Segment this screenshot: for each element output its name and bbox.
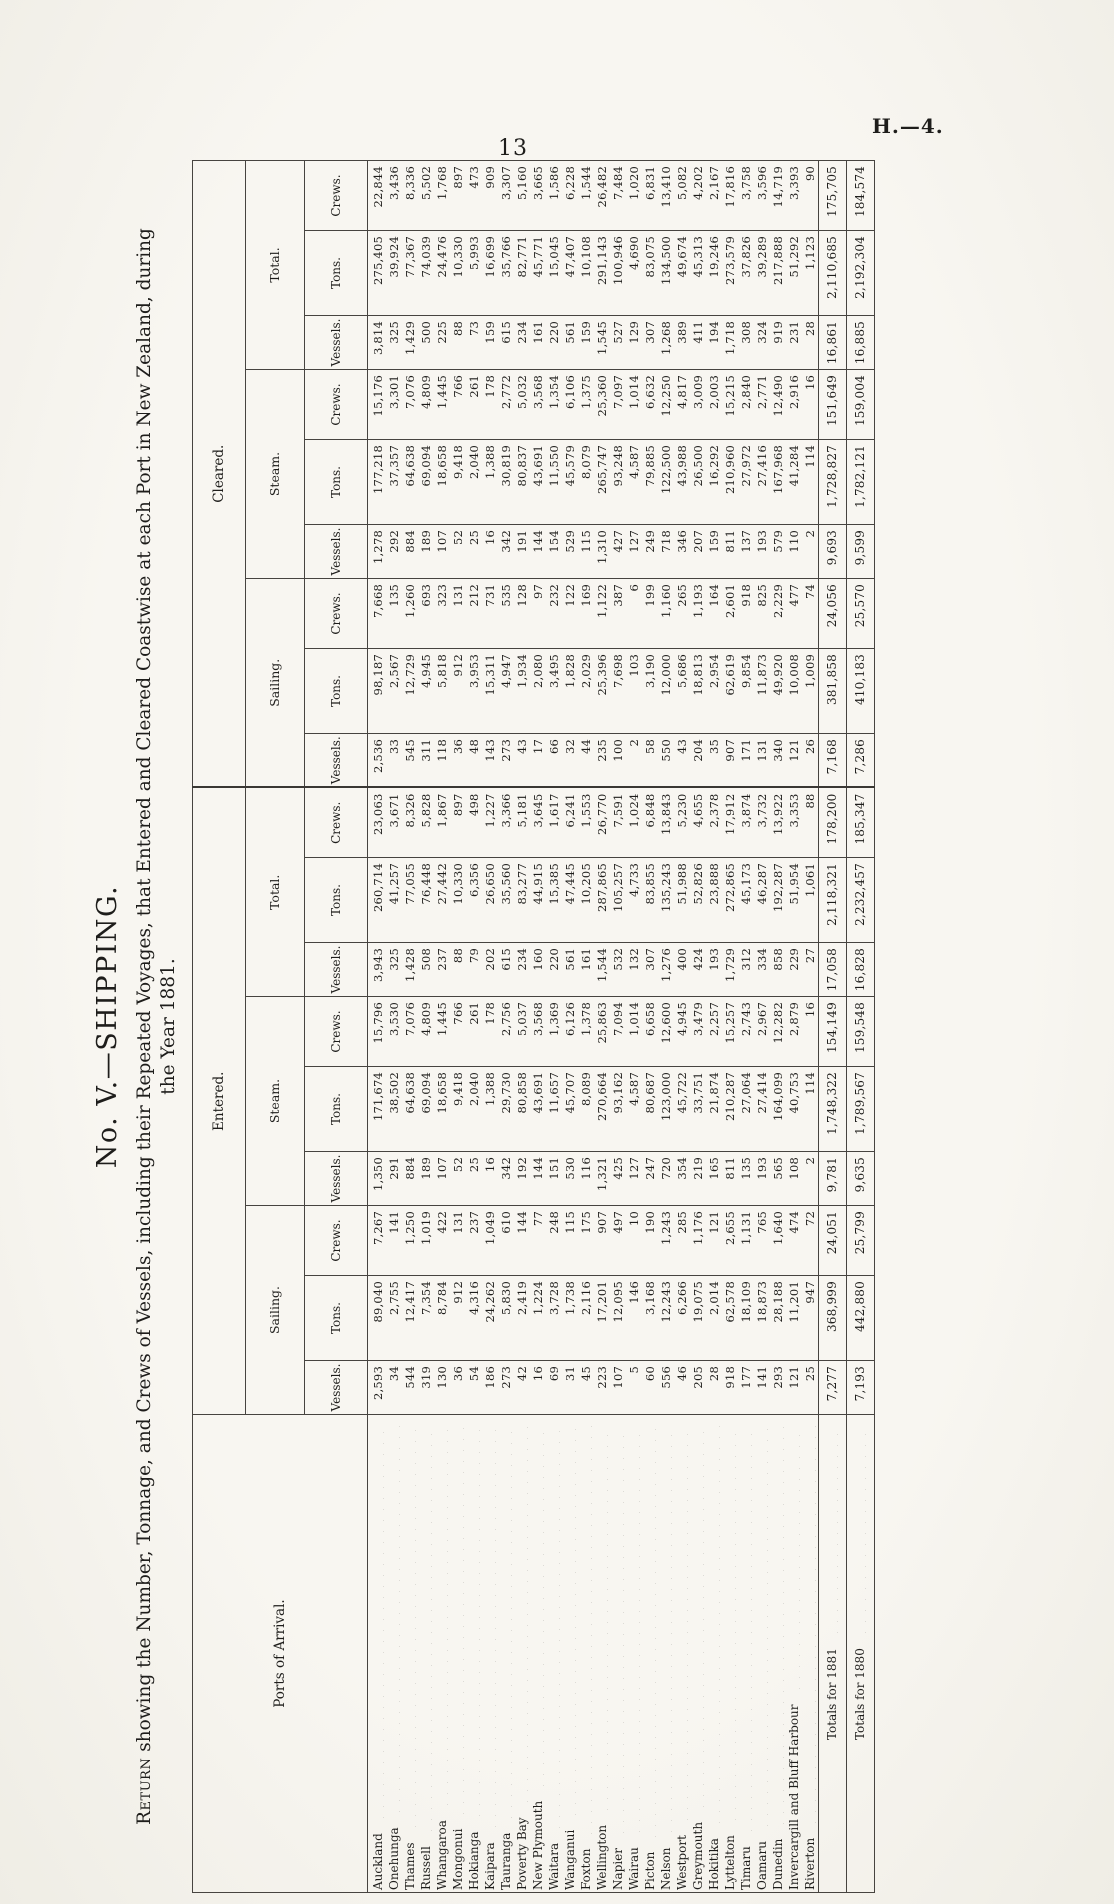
value-cell: 76,448 [418,858,434,943]
value-cell: 107 [610,1361,626,1415]
value-cell: 2,916 [786,370,802,440]
entered-sailing-header: Sailing. [245,1206,304,1415]
value-cell: 16,828 [846,943,874,997]
value-cell: 2,771 [754,370,770,440]
value-cell: 39,289 [754,231,770,316]
table-row: Greymouth20519,0751,17621933,7513,479424… [690,161,706,1893]
crews-column-header: Crews. [304,370,367,440]
value-cell: 171 [738,734,754,788]
leader-dots [708,1426,720,1828]
value-cell: 159 [578,316,594,370]
value-cell: 307 [642,943,658,997]
value-cell: 175 [578,1206,594,1276]
value-cell: 324 [754,316,770,370]
value-cell: 13,843 [658,788,674,858]
value-cell: 422 [434,1206,450,1276]
value-cell: 27,064 [738,1067,754,1152]
value-cell: 368,999 [818,1276,846,1361]
value-cell: 535 [498,579,514,649]
value-cell: 7,097 [610,370,626,440]
value-cell: 115 [562,1206,578,1276]
value-cell: 88 [450,316,466,370]
value-cell: 3,814 [367,316,386,370]
value-cell: 1,122 [594,579,610,649]
value-cell: 77,367 [402,231,418,316]
leader-dots [740,1426,752,1836]
value-cell: 579 [770,525,786,579]
value-cell: 293 [770,1361,786,1415]
value-cell: 17 [530,734,546,788]
value-cell: 2,840 [738,370,754,440]
value-cell: 25 [466,1152,482,1206]
value-cell: 135,243 [658,858,674,943]
value-cell: 1,388 [482,1067,498,1152]
cleared-steam-header: Steam. [245,370,304,579]
value-cell: 64,638 [402,440,418,525]
port-name: Russell [418,1415,434,1893]
value-cell: 325 [386,943,402,997]
value-cell: 909 [482,161,498,231]
value-cell: 21,874 [706,1067,722,1152]
value-cell: 13,410 [658,161,674,231]
value-cell: 387 [610,579,626,649]
value-cell: 18,873 [754,1276,770,1361]
value-cell: 16 [482,1152,498,1206]
value-cell: 1,867 [434,788,450,858]
value-cell: 4,733 [626,858,642,943]
value-cell: 43,988 [674,440,690,525]
value-cell: 25,863 [594,997,610,1067]
value-cell: 232 [546,579,562,649]
value-cell: 477 [786,579,802,649]
value-cell: 28 [802,316,819,370]
value-cell: 47,407 [562,231,578,316]
value-cell: 1,350 [367,1152,386,1206]
value-cell: 1,020 [626,161,642,231]
value-cell: 210,287 [722,1067,738,1152]
value-cell: 1,131 [738,1206,754,1276]
value-cell: 7,076 [402,997,418,1067]
value-cell: 918 [738,579,754,649]
value-cell: 12,282 [770,997,786,1067]
value-cell: 1,176 [690,1206,706,1276]
value-cell: 33,751 [690,1067,706,1152]
value-cell: 425 [610,1152,626,1206]
value-cell: 83,075 [642,231,658,316]
table-row: Dunedin29328,1881,640565164,09912,282858… [770,161,786,1893]
value-cell: 167,968 [770,440,786,525]
leader-dots [484,1426,496,1832]
value-cell: 225 [434,316,450,370]
value-cell: 12,417 [402,1276,418,1361]
value-cell: 83,855 [642,858,658,943]
entered-steam-header: Steam. [245,997,304,1206]
value-cell: 527 [610,316,626,370]
table-row: Nelson55612,2431,243720123,00012,6001,27… [658,161,674,1893]
value-cell: 127 [626,525,642,579]
value-cell: 884 [402,1152,418,1206]
value-cell: 1,782,121 [846,440,874,525]
value-cell: 918 [722,1361,738,1415]
value-cell: 410,183 [846,649,874,734]
value-cell: 3,953 [466,649,482,734]
leader-dots [756,1426,768,1831]
value-cell: 154 [546,525,562,579]
value-cell: 220 [546,943,562,997]
value-cell: 2,192,304 [846,231,874,316]
value-cell: 175,705 [818,161,846,231]
value-cell: 7,076 [402,370,418,440]
value-cell: 474 [786,1206,802,1276]
value-cell: 312 [738,943,754,997]
value-cell: 43,691 [530,440,546,525]
value-cell: 122,500 [658,440,674,525]
value-cell: 1,445 [434,370,450,440]
cleared-group-header: Cleared. [192,161,245,788]
value-cell: 11,873 [754,649,770,734]
value-cell: 248 [546,1206,562,1276]
value-cell: 169 [578,579,594,649]
value-cell: 2,257 [706,997,722,1067]
value-cell: 291 [386,1152,402,1206]
value-cell: 897 [450,161,466,231]
value-cell: 16,699 [482,231,498,316]
value-cell: 2,755 [386,1276,402,1361]
value-cell: 186 [482,1361,498,1415]
value-cell: 6,658 [642,997,658,1067]
value-cell: 16,885 [846,316,874,370]
tons-column-header: Tons. [304,1276,367,1361]
leader-dots [580,1426,592,1839]
port-name: Foxton [578,1415,594,1893]
value-cell: 128 [514,579,530,649]
value-cell: 1,243 [658,1206,674,1276]
value-cell: 69,094 [418,1067,434,1152]
value-cell: 5,502 [418,161,434,231]
value-cell: 107 [434,525,450,579]
value-cell: 3,393 [786,161,802,231]
table-totals: Totals for 18817,277368,99924,0519,7811,… [818,161,874,1893]
value-cell: 11,550 [546,440,562,525]
value-cell: 38,502 [386,1067,402,1152]
value-cell: 51,954 [786,858,802,943]
value-cell: 22,844 [367,161,386,231]
value-cell: 9,693 [818,525,846,579]
value-cell: 2,118,321 [818,858,846,943]
value-cell: 307 [642,316,658,370]
value-cell: 3,366 [498,788,514,858]
value-cell: 498 [466,788,482,858]
value-cell: 72 [802,1206,819,1276]
value-cell: 8,326 [402,788,418,858]
value-cell: 130 [434,1361,450,1415]
value-cell: 17,058 [818,943,846,997]
value-cell: 319 [418,1361,434,1415]
value-cell: 3,530 [386,997,402,1067]
value-cell: 693 [418,579,434,649]
value-cell: 1,429 [402,316,418,370]
value-cell: 79,885 [642,440,658,525]
value-cell: 16,292 [706,440,722,525]
port-name: Whangaroa [434,1415,450,1893]
value-cell: 25 [802,1361,819,1415]
value-cell: 24,051 [818,1206,846,1276]
value-cell: 9,781 [818,1152,846,1206]
value-cell: 5,082 [674,161,690,231]
value-cell: 11,657 [546,1067,562,1152]
port-name: Hokitika [706,1415,722,1893]
value-cell: 2 [802,525,819,579]
port-name: Poverty Bay [514,1415,530,1893]
value-cell: 291,143 [594,231,610,316]
value-cell: 354 [674,1152,690,1206]
table-row: Poverty Bay422,41914419280,8585,03723483… [514,161,530,1893]
value-cell: 131 [450,1206,466,1276]
value-cell: 15,045 [546,231,562,316]
value-cell: 12,095 [610,1276,626,1361]
leader-dots [404,1426,416,1832]
table-row: Oamaru14118,87376519327,4142,96733446,28… [754,161,770,1893]
value-cell: 12,243 [658,1276,674,1361]
value-cell: 1,193 [690,579,706,649]
value-cell: 118 [434,734,450,788]
value-cell: 508 [418,943,434,997]
value-cell: 154,149 [818,997,846,1067]
table-row: Napier10712,09549742593,1627,094532105,2… [610,161,626,1893]
value-cell: 308 [738,316,754,370]
value-cell: 44 [578,734,594,788]
value-cell: 912 [450,649,466,734]
value-cell: 10,330 [450,231,466,316]
value-cell: 127 [626,1152,642,1206]
value-cell: 11,201 [786,1276,802,1361]
value-cell: 16 [482,525,498,579]
value-cell: 4,655 [690,788,706,858]
value-cell: 2 [626,734,642,788]
value-cell: 121 [786,1361,802,1415]
value-cell: 62,578 [722,1276,738,1361]
totals-label: Totals for 1881 [818,1415,846,1893]
value-cell: 237 [434,943,450,997]
value-cell: 7,286 [846,734,874,788]
value-cell: 28,188 [770,1276,786,1361]
value-cell: 615 [498,943,514,997]
value-cell: 610 [498,1206,514,1276]
value-cell: 66 [546,734,562,788]
port-name: Nelson [658,1415,674,1893]
value-cell: 766 [450,997,466,1067]
value-cell: 77,055 [402,858,418,943]
value-cell: 3,301 [386,370,402,440]
value-cell: 3,009 [690,370,706,440]
value-cell: 3,168 [642,1276,658,1361]
value-cell: 1,544 [578,161,594,231]
value-cell: 17,816 [722,161,738,231]
value-cell: 947 [802,1276,819,1361]
value-cell: 33 [386,734,402,788]
value-cell: 342 [498,1152,514,1206]
tons-column-header: Tons. [304,649,367,734]
value-cell: 5,828 [418,788,434,858]
value-cell: 811 [722,525,738,579]
crews-column-header: Crews. [304,161,367,231]
totals-row: Totals for 18817,277368,99924,0519,7811,… [818,161,846,1893]
value-cell: 1,617 [546,788,562,858]
value-cell: 134,500 [658,231,674,316]
value-cell: 7,168 [818,734,846,788]
value-cell: 1,445 [434,997,450,1067]
value-cell: 340 [770,734,786,788]
value-cell: 49,674 [674,231,690,316]
leader-dots [548,1426,560,1833]
value-cell: 14,719 [770,161,786,231]
value-cell: 5,181 [514,788,530,858]
value-cell: 7,354 [418,1276,434,1361]
leader-dots [628,1426,640,1837]
value-cell: 103 [626,649,642,734]
leader-dots [612,1426,624,1838]
value-cell: 93,248 [610,440,626,525]
value-cell: 23,888 [706,858,722,943]
value-cell: 381,858 [818,649,846,734]
value-cell: 27,972 [738,440,754,525]
value-cell: 207 [690,525,706,579]
leader-dots [660,1426,672,1837]
value-cell: 25,799 [846,1206,874,1276]
value-cell: 2,378 [706,788,722,858]
value-cell: 7,591 [610,788,626,858]
table-row: Picton603,16819024780,6876,65830783,8556… [642,161,658,1893]
value-cell: 3,190 [642,649,658,734]
value-cell: 1,789,567 [846,1067,874,1152]
table-row: Lyttelton91862,5782,655811210,28715,2571… [722,161,738,1893]
value-cell: 178 [482,997,498,1067]
value-cell: 1,049 [482,1206,498,1276]
value-cell: 400 [674,943,690,997]
value-cell: 2,879 [786,997,802,1067]
value-cell: 73 [466,316,482,370]
value-cell: 43,691 [530,1067,546,1152]
value-cell: 131 [450,579,466,649]
scanned-page: 13 H.—4. No. V.—SHIPPING. Return showing… [0,0,1114,1904]
value-cell: 12,490 [770,370,786,440]
value-cell: 3,568 [530,997,546,1067]
value-cell: 231 [786,316,802,370]
value-cell: 185,347 [846,788,874,858]
value-cell: 178 [482,370,498,440]
value-cell: 4,809 [418,370,434,440]
value-cell: 273 [498,734,514,788]
value-cell: 3,495 [546,649,562,734]
value-cell: 1,375 [578,370,594,440]
value-cell: 2,167 [706,161,722,231]
value-cell: 1,260 [402,579,418,649]
leader-dots [420,1426,432,1836]
value-cell: 500 [418,316,434,370]
value-cell: 2,040 [466,440,482,525]
value-cell: 25 [466,525,482,579]
value-cell: 165 [706,1152,722,1206]
value-cell: 16,861 [818,316,846,370]
value-cell: 89,040 [367,1276,386,1361]
value-cell: 3,596 [754,161,770,231]
value-cell: 16 [802,370,819,440]
value-cell: 10,108 [578,231,594,316]
value-cell: 8,089 [578,1067,594,1152]
value-cell: 1,428 [402,943,418,997]
table-row: Wellington22317,2019071,321270,66425,863… [594,161,610,1893]
value-cell: 424 [690,943,706,997]
value-cell: 2,655 [722,1206,738,1276]
value-cell: 2,567 [386,649,402,734]
value-cell: 1,378 [578,997,594,1067]
table-row: Whangaroa1308,78442210718,6581,44523727,… [434,161,450,1893]
value-cell: 144 [530,1152,546,1206]
value-cell: 718 [658,525,674,579]
value-cell: 6,126 [562,997,578,1067]
value-cell: 2,080 [530,649,546,734]
crews-column-header: Crews. [304,1206,367,1276]
value-cell: 217,888 [770,231,786,316]
value-cell: 190 [642,1206,658,1276]
value-cell: 1,019 [418,1206,434,1276]
value-cell: 1,369 [546,997,562,1067]
table-row: Russell3197,3541,01918969,0944,80950876,… [418,161,434,1893]
value-cell: 1,586 [546,161,562,231]
value-cell: 27,414 [754,1067,770,1152]
port-name: Lyttelton [722,1415,738,1893]
value-cell: 12,000 [658,649,674,734]
value-cell: 36 [450,734,466,788]
value-cell: 1,014 [626,997,642,1067]
value-cell: 28 [706,1361,722,1415]
value-cell: 37,826 [738,231,754,316]
value-cell: 25,396 [594,649,610,734]
port-name: Oamaru [754,1415,770,1893]
leader-dots [452,1426,464,1819]
value-cell: 6,228 [562,161,578,231]
subtitle-lead: Return [134,1758,155,1825]
table-row: Tauranga2735,83061034229,7302,75661535,5… [498,161,514,1893]
leader-dots [500,1426,512,1823]
port-name: Auckland [367,1415,386,1893]
value-cell: 4,945 [418,649,434,734]
value-cell: 135 [738,1152,754,1206]
value-cell: 3,568 [530,370,546,440]
value-cell: 3,479 [690,997,706,1067]
value-cell: 35 [706,734,722,788]
value-cell: 37,357 [386,440,402,525]
port-name: Mongonui [450,1415,466,1893]
value-cell: 177,218 [367,440,386,525]
port-name: Greymouth [690,1415,706,1893]
value-cell: 229 [786,943,802,997]
value-cell: 27,442 [434,858,450,943]
leader-dots [516,1426,528,1807]
value-cell: 6,831 [642,161,658,231]
value-cell: 15,257 [722,997,738,1067]
table-row: Thames54412,4171,25088464,6387,0761,4287… [402,161,418,1893]
value-cell: 25,360 [594,370,610,440]
value-cell: 237 [466,1206,482,1276]
value-cell: 19,246 [706,231,722,316]
value-cell: 135 [386,579,402,649]
value-cell: 192,287 [770,858,786,943]
value-cell: 1,388 [482,440,498,525]
value-cell: 907 [594,1206,610,1276]
value-cell: 45 [578,1361,594,1415]
value-cell: 13,922 [770,788,786,858]
